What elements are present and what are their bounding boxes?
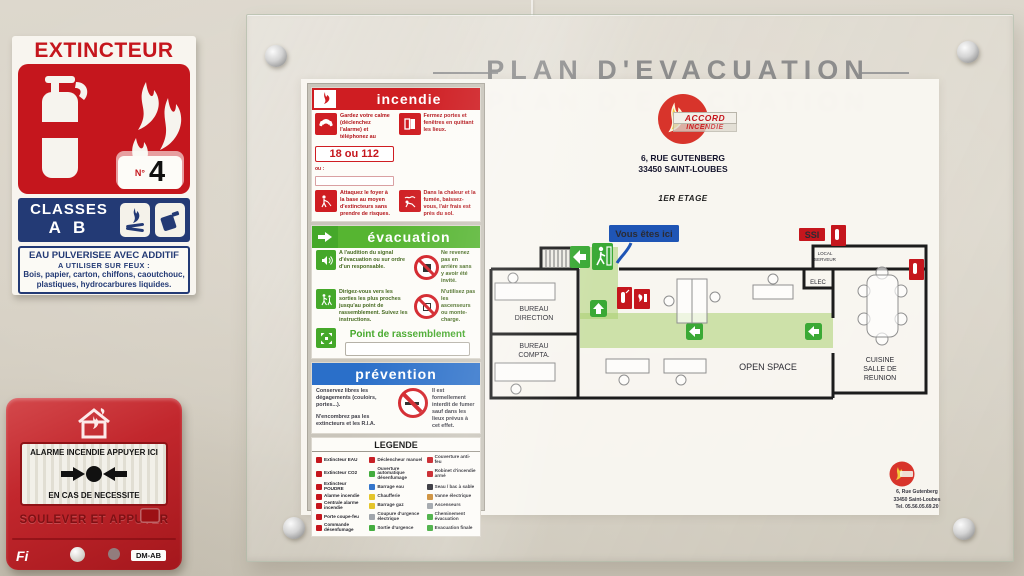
extinguisher-marker-kitchen (909, 259, 924, 280)
legend-item: Extincteur CO2 (316, 467, 365, 481)
extinguisher-number: 4 (149, 158, 165, 187)
extinguisher-sign-title: EXTINCTEUR (18, 39, 190, 63)
no-return-icon (414, 255, 439, 280)
evacuation-title: évacuation (338, 226, 480, 248)
fire-blanket-icon (427, 457, 433, 463)
or-label: ou : (315, 166, 394, 172)
no-smoking-icon (398, 388, 428, 418)
evacuation-row-2: Dirigez-vous vers les sorties les plus p… (312, 287, 480, 326)
room-label-compta: BUREAU (519, 343, 548, 350)
accord-incendie-wordmark: ACCORD INCENDIE (673, 112, 737, 132)
standoff-screw-top-right (957, 41, 979, 63)
evacuation-text-2: Dirigez-vous vers les sorties les plus p… (339, 289, 411, 324)
alarm-instruction-line1: ALARME INCENDIE APPUYER ICI (30, 448, 158, 457)
legend-item: Barrage gaz (369, 501, 422, 511)
classes-label: CLASSES (23, 202, 115, 219)
prevention-text-1: Conservez libres les dégagements (couloi… (316, 388, 394, 409)
incendie-block: incendie Gardez votre calme (déclenchez … (311, 87, 481, 222)
person-extinguisher-icon (315, 190, 337, 212)
press-here-arrows-icon (59, 464, 129, 484)
footer-accord-logo (889, 461, 915, 487)
manual-call-point-icon (369, 457, 375, 463)
final-exit-icon (427, 525, 433, 531)
exit-arrow-icon (312, 226, 338, 248)
fire-door-icon (316, 514, 322, 520)
fire-hose-icon (427, 471, 433, 477)
legend-title: LEGENDE (312, 438, 480, 452)
incendie-cell-smoke: Dans la chaleur et la fumée, baissez-vou… (399, 190, 478, 218)
extinguisher-co2-icon (316, 471, 322, 477)
site-address-line1: 6, RUE GUTENBERG (583, 153, 783, 163)
legend-item: Robinet d'incendie armé (427, 467, 476, 481)
evacuation-right-1: Ne revenez pas en arrière sans y avoir é… (441, 250, 476, 285)
incendie-cell-doors: Fermez portes et fenêtres en quittant le… (399, 113, 478, 186)
legend-item: Chaufferie (369, 494, 422, 500)
svg-text:Vous êtes ici: Vous êtes ici (615, 229, 672, 240)
incendie-text-2: Fermez portes et fenêtres en quittant le… (424, 113, 478, 134)
legend-item: Déclencheur manuel (369, 455, 422, 465)
ssi-label: SSI (799, 228, 825, 241)
svg-text:DIRECTION: DIRECTION (515, 315, 554, 322)
exit-sign-arrow-left (570, 246, 590, 268)
you-are-here-marker: Vous êtes ici (609, 225, 679, 263)
sand-bucket-icon (427, 484, 433, 490)
room-label-serveur: LOCAL (818, 251, 833, 256)
exit-sign-running-man (592, 243, 613, 270)
incendie-text-1: Gardez votre calme (déclenchez l'alarme)… (340, 113, 394, 141)
legend-item: Centrale alarme incendie (316, 501, 365, 511)
logo-word-bottom: INCENDIE (673, 124, 737, 132)
usage-title: EAU PULVERISEE AVEC ADDITIF (23, 250, 185, 261)
assembly-point-writein-box (345, 342, 470, 356)
legend-item: Ascenseurs (427, 501, 476, 511)
emergency-number: 18 ou 112 (315, 146, 394, 162)
room-label-cuisine: CUISINE (866, 357, 895, 364)
legend-item: Seau / bac à sable (427, 482, 476, 492)
number-label: N° (135, 168, 145, 178)
flame-icon (312, 88, 338, 110)
alarm-brand-logo: Fi (16, 548, 28, 564)
evacuation-row-1: A l'audition du signal d'évacuation ou s… (312, 248, 480, 287)
extinguisher-pictogram-panel: N° 4 (18, 64, 190, 194)
running-people-icon (316, 289, 336, 309)
footer-address: 6, Rue Gutenberg 33450 Saint-Loubes Tel.… (859, 489, 975, 512)
room-label-elec: ELEC (810, 280, 826, 286)
direction-arrow-up (590, 300, 607, 317)
room-label-direction: BUREAU (519, 306, 548, 313)
extinguisher-marker-corridor (617, 287, 632, 309)
no-elevator-icon (414, 294, 439, 319)
cover-hinge (12, 538, 176, 540)
gas-shutoff-icon (369, 503, 375, 509)
floor-label: 1ER ETAGE (583, 194, 783, 203)
alarm-instruction-line2: EN CAS DE NECESSITE (48, 491, 139, 500)
floor-plan-map: SSI (481, 223, 941, 408)
svg-text:SALLE DE: SALLE DE (863, 366, 897, 373)
standoff-screw-bottom-right (953, 518, 975, 540)
direction-arrow-left-2 (805, 323, 822, 340)
legend-item: Coupure d'urgence électrique (369, 512, 422, 522)
fire-alarm-call-point: ALARME INCENDIE APPUYER ICI EN CAS DE NE… (6, 398, 182, 570)
power-cutoff-icon (369, 514, 375, 520)
phone-icon (315, 113, 337, 135)
svg-text:SERVEUR: SERVEUR (814, 257, 836, 262)
emergency-exit-icon (369, 525, 375, 531)
auto-opening-icon (369, 471, 375, 477)
evacuation-row-3: Point de rassemblement (312, 326, 480, 358)
logo-word-top: ACCORD (673, 112, 737, 124)
site-address-line2: 33450 SAINT-LOUBES (583, 164, 783, 174)
incendie-title: incendie (338, 88, 480, 110)
svg-text:COMPTA.: COMPTA. (518, 352, 549, 359)
evacuation-route-icon (427, 514, 433, 520)
legend-item: Alarme incendie (316, 494, 365, 500)
burning-house-icon (71, 406, 117, 445)
legend-item: Vanne électrique (427, 494, 476, 500)
legend-item: Evacuation finale (427, 523, 476, 533)
usage-subtitle: A UTILISER SUR FEUX : (23, 261, 185, 270)
svg-text:REUNION: REUNION (864, 375, 896, 382)
assembly-point-icon (316, 328, 336, 348)
legend-item: Sortie d'urgence (369, 523, 422, 533)
wall-photo: EXTINCTEUR N° 4 CLASSES (0, 0, 1024, 576)
legend-item: Cheminement évacuation (427, 512, 476, 522)
incendie-cell-attack: Attaquez le foyer à la base au moyen d'e… (315, 190, 394, 218)
prevention-title: prévention (312, 363, 480, 385)
room-label-open-space: OPEN SPACE (739, 362, 797, 372)
legend-item: Commande désenfumage (316, 523, 365, 533)
test-button (70, 547, 85, 562)
boiler-room-icon (369, 494, 375, 500)
direction-arrow-left-1 (686, 323, 703, 340)
call-point-marker-corridor (634, 289, 650, 309)
alarm-model-label: DM-AB (131, 550, 166, 561)
prevention-block: prévention Conservez libres les dégageme… (311, 362, 481, 434)
fire-alarm-icon (316, 494, 322, 500)
plan-backing-sheet: ACCORD INCENDIE 6, RUE GUTENBERG 33450 S… (301, 79, 939, 515)
crawl-under-smoke-icon (399, 190, 421, 212)
standoff-screw-bottom-left (283, 517, 305, 539)
alarm-label-window: ALARME INCENDIE APPUYER ICI EN CAS DE NE… (20, 442, 168, 506)
extinguisher-marker-top (831, 225, 846, 246)
standoff-screw-top-left (265, 45, 287, 67)
extinguisher-sign: EXTINCTEUR N° 4 CLASSES (12, 36, 196, 295)
alarm-sound-icon (316, 250, 336, 270)
legend-item: Couverture anti-feu (427, 455, 476, 465)
evacuation-right-2: N'utilisez pas les ascenseurs ou monte-c… (441, 289, 476, 324)
legend-block: LEGENDE Extincteur EAU Déclencheur manue… (311, 437, 481, 537)
prevention-text-2: N'encombrez pas les extincteurs et les R… (316, 414, 394, 428)
evacuation-plan-panel: PLAN D'EVACUATION PLAN D'EVACUATION ACCO… (246, 14, 1014, 562)
brand-sticker (140, 508, 160, 523)
incendie-text-4: Dans la chaleur et la fumée, baissez-vou… (424, 190, 478, 218)
usage-text: Bois, papier, carton, chiffons, caoutcho… (23, 270, 185, 290)
extinguisher-number-box: N° 4 (118, 156, 182, 189)
legend-item: Ouverture automatique désenfumage (369, 467, 422, 481)
electric-valve-icon (427, 494, 433, 500)
class-a-solids-fire-icon (120, 203, 150, 237)
staircase (543, 250, 572, 268)
extinguisher-powder-icon (316, 484, 322, 490)
incendie-text-3: Attaquez le foyer à la base au moyen d'e… (340, 190, 394, 218)
classes-value: A B (23, 219, 115, 238)
extinguisher-water-icon (316, 457, 322, 463)
safety-instructions-column: incendie Gardez votre calme (déclenchez … (307, 83, 485, 511)
reset-screw (108, 548, 120, 560)
legend-item: Barrage eau (369, 482, 422, 492)
alarm-panel-icon (316, 503, 322, 509)
smoke-control-icon (316, 525, 322, 531)
legend-item: Porte coupe-feu (316, 512, 365, 522)
custom-number-box (315, 176, 394, 186)
fire-classes-band: CLASSES A B (18, 198, 190, 242)
svg-text:SSI: SSI (805, 230, 820, 240)
elevator-icon (427, 503, 433, 509)
closed-door-icon (399, 113, 421, 135)
evacuation-text-1: A l'audition du signal d'évacuation ou s… (339, 250, 411, 271)
prevention-text-3: Il est formellement interdit de fumer sa… (432, 388, 476, 430)
incendie-cell-call: Gardez votre calme (déclenchez l'alarme)… (315, 113, 394, 186)
water-shutoff-icon (369, 484, 375, 490)
assembly-point-label: Point de rassemblement (339, 329, 476, 340)
evacuation-block: évacuation A l'audition du signal d'évac… (311, 225, 481, 359)
class-b-liquids-fire-icon (155, 203, 185, 237)
legend-item: Extincteur EAU (316, 455, 365, 465)
legend-item: Extincteur POUDRE (316, 482, 365, 492)
usage-instructions-box: EAU PULVERISEE AVEC ADDITIF A UTILISER S… (18, 246, 190, 294)
